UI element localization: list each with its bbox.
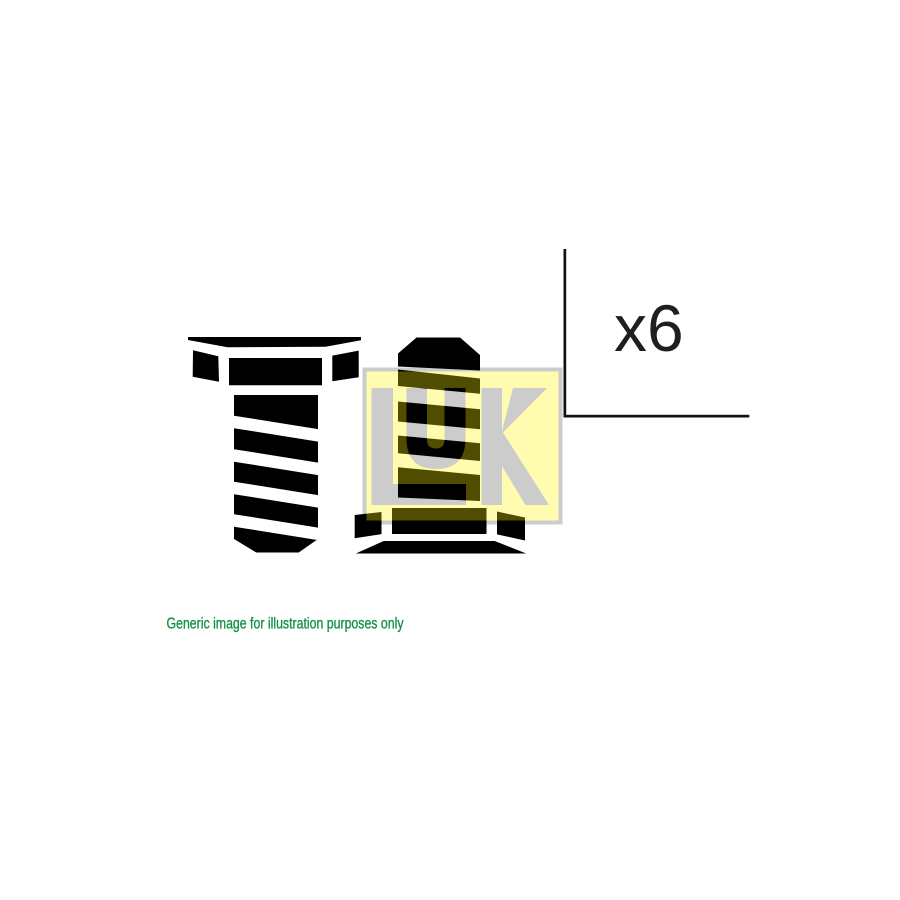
- svg-text:x6: x6: [614, 291, 684, 365]
- svg-text:Generic image for illustration: Generic image for illustration purposes …: [167, 616, 404, 633]
